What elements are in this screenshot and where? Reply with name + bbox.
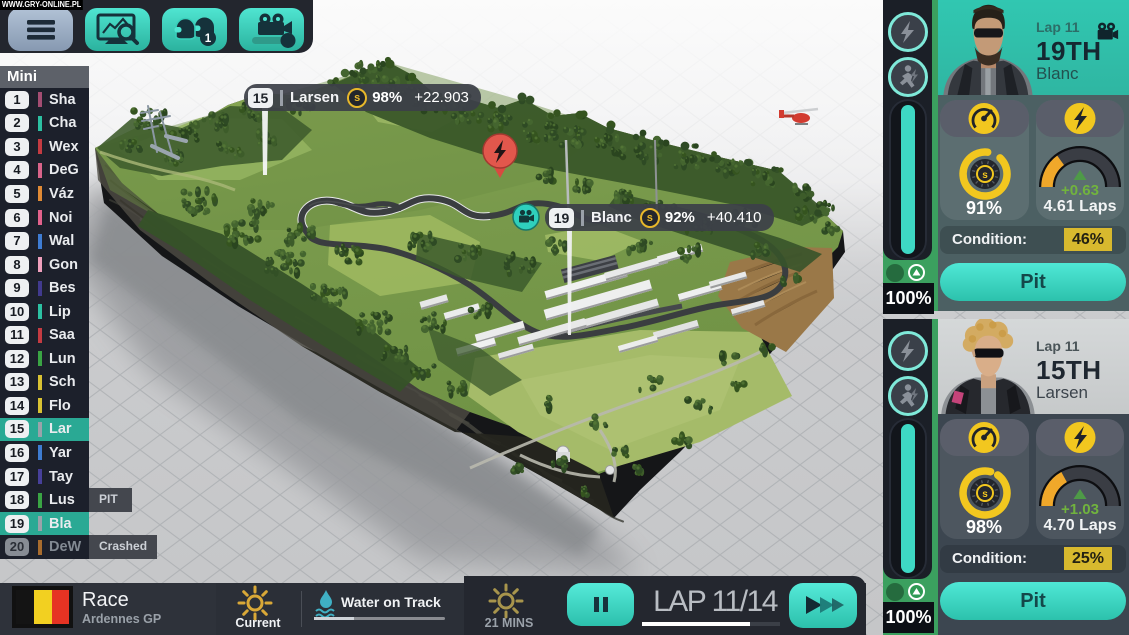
svg-text:s: s xyxy=(982,489,988,500)
svg-text:s: s xyxy=(982,170,988,181)
svg-text:1: 1 xyxy=(205,33,212,45)
